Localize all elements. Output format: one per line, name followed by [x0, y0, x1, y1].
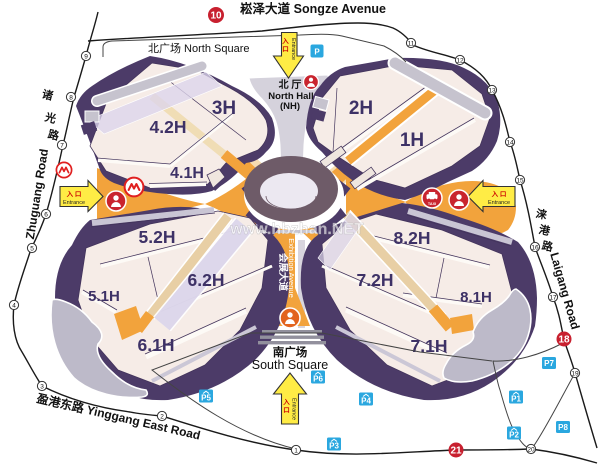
svg-text:口: 口 [283, 406, 290, 414]
svg-text:Exhibition Avenue: Exhibition Avenue [287, 238, 296, 298]
svg-text:入 口: 入 口 [66, 190, 82, 198]
svg-text:6: 6 [44, 211, 48, 218]
svg-text:21: 21 [450, 446, 462, 457]
svg-text:P7: P7 [544, 359, 554, 368]
svg-text:TAXI: TAXI [428, 202, 436, 206]
svg-text:北广场 North Square: 北广场 North Square [148, 41, 249, 55]
svg-text:Entrance: Entrance [290, 38, 296, 60]
svg-text:入: 入 [281, 37, 289, 45]
svg-text:4.1H: 4.1H [170, 165, 204, 182]
svg-text:北 厅: 北 厅 [279, 78, 302, 91]
svg-text:www.hbzhan.NET: www.hbzhan.NET [229, 221, 364, 238]
svg-text:入 口: 入 口 [491, 190, 507, 198]
svg-text:P6: P6 [313, 375, 323, 384]
svg-text:Entrance: Entrance [63, 200, 85, 206]
svg-text:8: 8 [69, 94, 73, 101]
svg-text:7.2H: 7.2H [357, 270, 394, 290]
svg-text:20: 20 [527, 446, 535, 453]
svg-text:4: 4 [12, 302, 16, 309]
svg-text:5.2H: 5.2H [139, 227, 176, 247]
svg-text:7: 7 [60, 142, 64, 149]
svg-text:13: 13 [488, 87, 496, 94]
svg-text:崧泽大道 Songze Avenue: 崧泽大道 Songze Avenue [240, 1, 386, 16]
svg-text:P1: P1 [511, 395, 521, 404]
svg-text:16: 16 [531, 244, 539, 251]
svg-text:5.1H: 5.1H [88, 288, 120, 305]
svg-text:2: 2 [160, 413, 164, 420]
svg-text:P3: P3 [329, 442, 339, 451]
svg-text:3H: 3H [212, 98, 236, 119]
svg-text:17: 17 [549, 294, 557, 301]
svg-text:8.2H: 8.2H [394, 228, 431, 248]
svg-text:(NH): (NH) [280, 101, 300, 112]
svg-text:9: 9 [84, 53, 88, 60]
svg-text:12: 12 [456, 57, 464, 64]
svg-text:Entrance: Entrance [291, 398, 297, 420]
svg-text:入: 入 [282, 398, 290, 406]
svg-text:P8: P8 [558, 423, 568, 432]
svg-text:14: 14 [506, 139, 514, 146]
svg-text:4.2H: 4.2H [150, 117, 187, 137]
svg-text:6.2H: 6.2H [188, 270, 225, 290]
svg-text:南广场: 南广场 [273, 345, 308, 359]
svg-text:3: 3 [40, 383, 44, 390]
svg-text:P5: P5 [201, 394, 211, 403]
svg-text:P: P [314, 48, 320, 57]
svg-text:Entrance: Entrance [488, 200, 510, 206]
svg-text:1H: 1H [400, 130, 424, 151]
svg-text:P2: P2 [509, 431, 519, 440]
svg-text:South Square: South Square [252, 358, 328, 372]
svg-text:18: 18 [558, 335, 570, 346]
svg-text:19: 19 [571, 370, 579, 377]
svg-text:11: 11 [408, 40, 415, 47]
svg-text:口: 口 [282, 45, 289, 53]
svg-text:P4: P4 [361, 397, 371, 406]
svg-text:10: 10 [210, 11, 222, 22]
svg-text:2H: 2H [349, 98, 373, 119]
svg-text:15: 15 [516, 177, 524, 184]
svg-text:5: 5 [30, 245, 34, 252]
svg-text:8.1H: 8.1H [460, 289, 492, 306]
svg-text:6.1H: 6.1H [138, 335, 175, 355]
svg-text:1: 1 [294, 447, 298, 454]
